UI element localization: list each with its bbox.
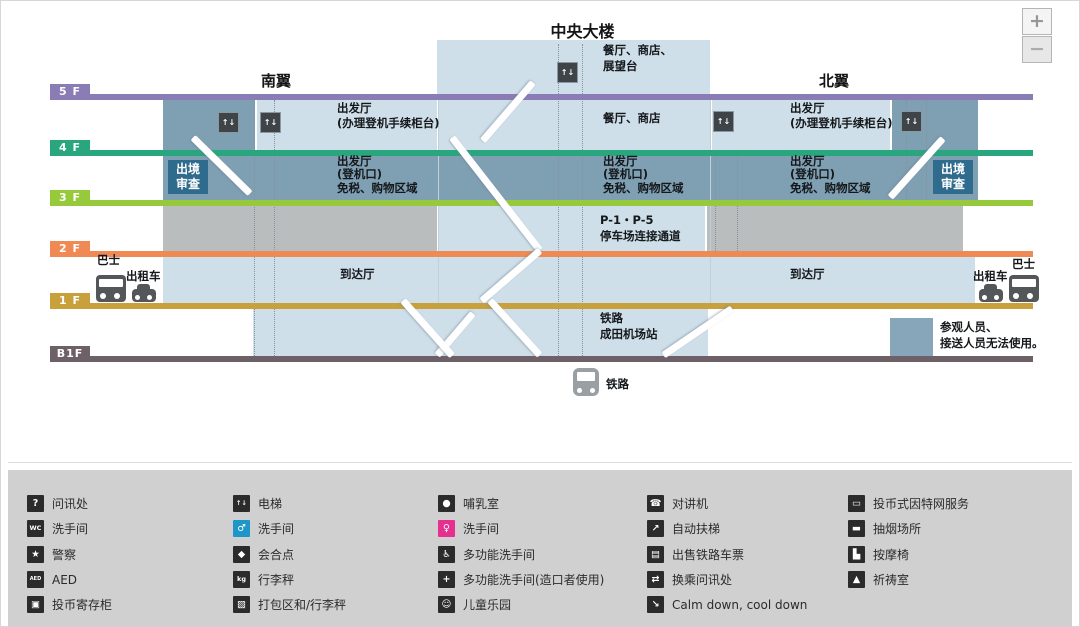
floor-guide-widget: 中央大楼 南翼 北翼 5 F bbox=[0, 0, 1080, 627]
north-immigration-box: 出境 审查 bbox=[933, 160, 973, 194]
legend-label: 出售铁路车票 bbox=[672, 547, 744, 563]
legend-label: 按摩椅 bbox=[873, 547, 909, 563]
floor-label-1f: 1 F bbox=[50, 293, 90, 309]
north-checkin-label-line2: (办理登机手续柜台) bbox=[790, 117, 893, 131]
immigration-label-line1: 出境 bbox=[933, 162, 973, 177]
zoom-in-button[interactable]: + bbox=[1022, 8, 1052, 35]
rooftop-label-line2: 展望台 bbox=[603, 60, 638, 74]
floor-line-3f bbox=[90, 200, 1033, 206]
elevator-icon: ↑↓ bbox=[233, 495, 250, 512]
region-north-parking-level bbox=[707, 206, 963, 251]
center-gates-label-line2: (登机口) bbox=[603, 168, 648, 182]
packing-area-icon: ▧ bbox=[233, 596, 250, 613]
floor-label-4f: 4 F bbox=[50, 140, 90, 156]
immigration-label-line1: 出境 bbox=[168, 162, 208, 177]
information-icon: ? bbox=[27, 495, 44, 512]
north-wing-label: 北翼 bbox=[802, 70, 866, 91]
legend-label: 电梯 bbox=[258, 496, 282, 512]
ostomate-restroom-icon: + bbox=[438, 571, 455, 588]
intercom-icon: ☎ bbox=[647, 495, 664, 512]
south-checkin-label-line2: (办理登机手续柜台) bbox=[337, 117, 440, 131]
region-south-parking-level bbox=[163, 206, 437, 251]
notice-label-line2: 接送人员无法使用。 bbox=[940, 337, 1044, 351]
calm-down-icon: ↘ bbox=[647, 596, 664, 613]
south-gates-label-line2: (登机口) bbox=[337, 168, 382, 182]
legend-label: 对讲机 bbox=[672, 496, 708, 512]
legend-label: 儿童乐园 bbox=[463, 597, 511, 613]
legend-label: 会合点 bbox=[258, 547, 294, 563]
legend-label: AED bbox=[52, 572, 77, 588]
restricted-area-swatch bbox=[890, 318, 933, 356]
parking-label-line2: 停车场连接通道 bbox=[600, 230, 681, 244]
legend-label: 问讯处 bbox=[52, 496, 88, 512]
legend-label: 多功能洗手间(造口者使用) bbox=[463, 572, 604, 588]
elevator-shaft-line bbox=[274, 100, 275, 356]
rail-bottom-label: 铁路 bbox=[606, 378, 629, 392]
north-checkin-label-line1: 出发厅 bbox=[790, 102, 825, 116]
center-5f-label: 餐厅、商店 bbox=[603, 112, 661, 126]
coin-locker-icon: ▣ bbox=[27, 596, 44, 613]
accessible-restroom-icon: ♿ bbox=[438, 546, 455, 563]
meeting-point-icon: ◆ bbox=[233, 546, 250, 563]
legend-label: Calm down, cool down bbox=[672, 597, 807, 613]
rooftop-label-line1: 餐厅、商店、 bbox=[603, 44, 672, 58]
legend-label: 警察 bbox=[52, 547, 76, 563]
floor-line-b1f bbox=[90, 356, 1033, 362]
legend-label: 抽烟场所 bbox=[873, 521, 921, 537]
aed-icon: AED bbox=[27, 571, 44, 588]
map-legend-divider bbox=[8, 462, 1072, 463]
north-gates-label-line3: 免税、购物区域 bbox=[790, 182, 871, 196]
terminal-map[interactable]: 中央大楼 南翼 北翼 5 F bbox=[8, 8, 1072, 462]
floor-line-5f bbox=[90, 94, 1033, 100]
kids-park-icon: ☺ bbox=[438, 596, 455, 613]
escalator-icon: ↗ bbox=[647, 520, 664, 537]
legend-label: 洗手间 bbox=[463, 521, 499, 537]
bus-icon bbox=[96, 275, 126, 302]
transfer-information-icon: ⇄ bbox=[647, 571, 664, 588]
elevator-icon: ↑↓ bbox=[219, 113, 238, 132]
luggage-scale-icon: kg bbox=[233, 571, 250, 588]
region-center-restaurants bbox=[439, 100, 710, 150]
police-icon: ★ bbox=[27, 546, 44, 563]
north-gates-label-line2: (登机口) bbox=[790, 168, 835, 182]
massage-chair-icon: ▙ bbox=[848, 546, 865, 563]
immigration-label-line2: 审查 bbox=[168, 177, 208, 192]
center-gates-label-line3: 免税、购物区域 bbox=[603, 182, 684, 196]
train-icon bbox=[573, 368, 599, 396]
elevator-icon: ↑↓ bbox=[714, 112, 733, 131]
legend-label: 行李秤 bbox=[258, 572, 294, 588]
zoom-controls: + − bbox=[1022, 8, 1052, 63]
legend-label: 祈祷室 bbox=[873, 572, 909, 588]
legend-label: 洗手间 bbox=[52, 521, 88, 537]
legend-band: ?问讯处WC洗手间★警察AEDAED▣投币寄存柜↑↓电梯♂洗手间◆会合点kg行李… bbox=[8, 470, 1072, 627]
rail-station-label-line1: 铁路 bbox=[600, 312, 623, 326]
elevator-icon: ↑↓ bbox=[902, 112, 921, 131]
floor-label-5f: 5 F bbox=[50, 84, 90, 100]
taxi-label-left: 出租车 bbox=[126, 270, 161, 284]
zoom-out-button[interactable]: − bbox=[1022, 36, 1052, 63]
floor-label-b1f: B1F bbox=[50, 346, 90, 362]
bus-label-left: 巴士 bbox=[97, 254, 120, 268]
legend-label: 自动扶梯 bbox=[672, 521, 720, 537]
legend-label: 多功能洗手间 bbox=[463, 547, 535, 563]
rail-ticket-icon: ▤ bbox=[647, 546, 664, 563]
taxi-icon bbox=[132, 289, 156, 302]
parking-label-line1: P-1・P-5 bbox=[600, 214, 654, 228]
floor-label-2f: 2 F bbox=[50, 241, 90, 257]
floor-line-1f bbox=[90, 303, 1033, 309]
region-south-secure-block bbox=[163, 100, 255, 150]
immigration-label-line2: 审查 bbox=[933, 177, 973, 192]
south-immigration-box: 出境 审查 bbox=[168, 160, 208, 194]
legend-label: 哺乳室 bbox=[463, 496, 499, 512]
legend-label: 投币式因特网服务 bbox=[873, 496, 969, 512]
elevator-icon: ↑↓ bbox=[558, 63, 577, 82]
legend-label: 洗手间 bbox=[258, 521, 294, 537]
page-title: 中央大楼 bbox=[500, 18, 665, 42]
floor-line-4f bbox=[90, 150, 1033, 156]
prayer-room-icon: ▲ bbox=[848, 571, 865, 588]
rail-station-label-line2: 成田机场站 bbox=[600, 328, 658, 342]
floor-line-2f bbox=[90, 251, 1033, 257]
internet-service-icon: ▭ bbox=[848, 495, 865, 512]
elevator-icon: ↑↓ bbox=[261, 113, 280, 132]
south-wing-label: 南翼 bbox=[244, 70, 308, 91]
south-checkin-label-line1: 出发厅 bbox=[337, 102, 372, 116]
bus-label-right: 巴士 bbox=[1012, 258, 1035, 272]
region-arrivals-band bbox=[163, 257, 975, 303]
legend-label: 换乘问讯处 bbox=[672, 572, 732, 588]
notice-label-line1: 参观人员、 bbox=[940, 321, 998, 335]
mens-restroom-icon: ♂ bbox=[233, 520, 250, 537]
womens-restroom-icon: ♀ bbox=[438, 520, 455, 537]
smoking-area-icon: ▬ bbox=[848, 520, 865, 537]
floor-label-3f: 3 F bbox=[50, 190, 90, 206]
taxi-icon bbox=[979, 289, 1003, 302]
south-arrivals-label: 到达厅 bbox=[340, 268, 375, 282]
nursing-room-icon: ● bbox=[438, 495, 455, 512]
legend-label: 投币寄存柜 bbox=[52, 597, 112, 613]
elevator-shaft-line bbox=[254, 100, 255, 356]
restroom-icon: WC bbox=[27, 520, 44, 537]
south-gates-label-line3: 免税、购物区域 bbox=[337, 182, 418, 196]
taxi-label-right: 出租车 bbox=[973, 270, 1008, 284]
bus-icon bbox=[1009, 275, 1039, 302]
north-arrivals-label: 到达厅 bbox=[790, 268, 825, 282]
legend-label: 打包区和/行李秤 bbox=[258, 597, 346, 613]
